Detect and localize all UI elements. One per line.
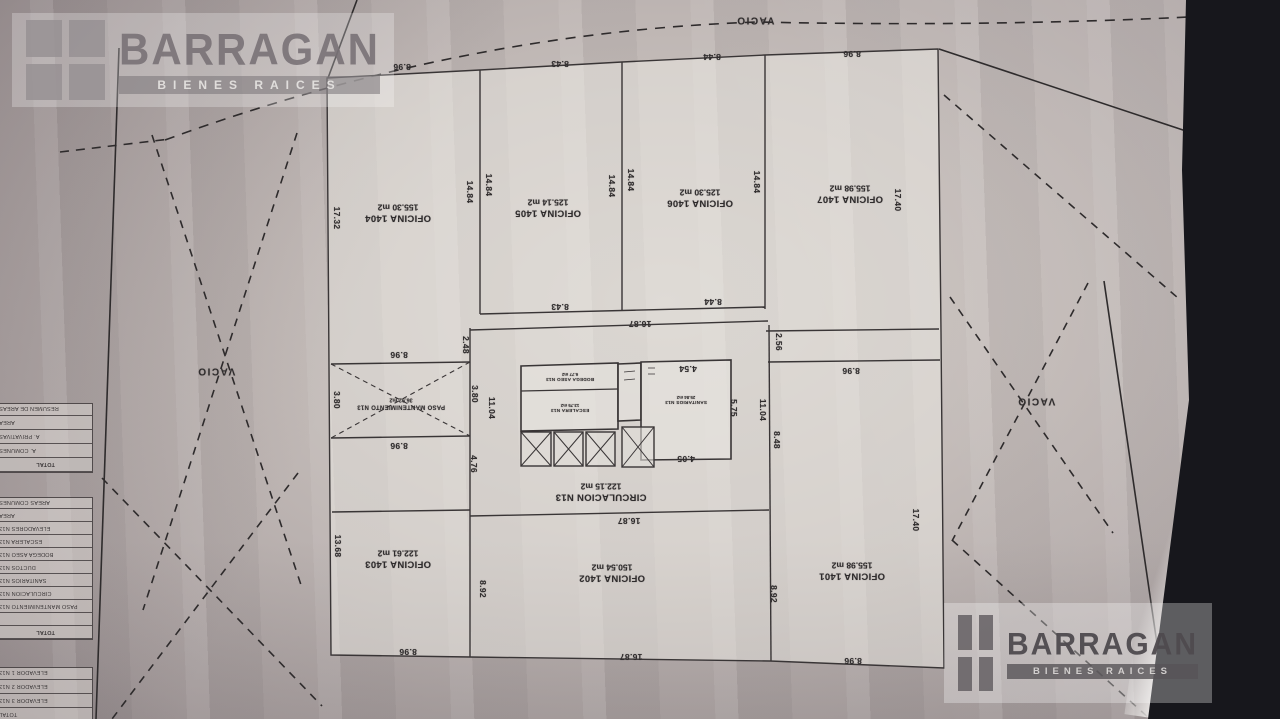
room-label: OFICINA 1406125.30 m2: [667, 187, 733, 208]
table-row: [0, 613, 92, 626]
room-area: 155.98 m2: [819, 560, 885, 570]
room-label: PASO MANTENIMIENTO N1336.92 m2: [357, 396, 445, 409]
dimension-label: 14.84: [626, 169, 636, 192]
dimension-label: 16.87: [629, 319, 652, 329]
dimension-label: 11.04: [487, 397, 497, 419]
table-row: ELEVADOR 3 N13: [0, 694, 92, 708]
dimension-label: 4.76: [469, 455, 479, 473]
dimension-label: 8.43: [551, 59, 569, 69]
logo-watermark-bottom-right: BARRAGAN BIENES RAICES: [944, 603, 1212, 703]
room-name: OFICINA 1401: [819, 569, 885, 580]
property-line-topright: [939, 49, 1186, 131]
room-area: 13.75 m2: [551, 403, 589, 408]
dimension-label: 8.96: [390, 441, 408, 451]
table-row: AREA: [0, 416, 92, 430]
dashed-line-bottomleft: [102, 478, 322, 706]
room-name: CIRCULACION N13: [555, 490, 646, 501]
dimension-label: 5.75: [729, 399, 739, 417]
dimension-label: 3.80: [470, 385, 480, 403]
table-row: RESUMEN DE AREAS: [0, 402, 92, 416]
room-name: BODEGA ASEO N13: [546, 377, 594, 382]
room-label: OFICINA 1402150.54 m2: [579, 562, 645, 583]
table-row: ELEVADOR 1 N13: [0, 666, 92, 680]
room-label: BODEGA ASEO N136.77 m2: [546, 372, 594, 382]
dimension-label: 8.96: [844, 656, 862, 666]
brand-name: BARRAGAN: [119, 25, 380, 75]
room-label: SANITARIOS N1325.84 m2: [665, 395, 707, 405]
dimension-label: 16.87: [618, 516, 641, 526]
dimension-label: 8.48: [772, 431, 782, 449]
dimension-label: 2.48: [461, 336, 471, 354]
elevators-table: TOTALELEVADOR 3 N13ELEVADOR 2 N13ELEVADO…: [0, 667, 93, 719]
room-label: OFICINA 1404155.30 m2: [365, 202, 431, 223]
elevator-shaft-1: [521, 432, 551, 466]
room-name: OFICINA 1404: [365, 211, 431, 222]
logo-watermark-top-left: BARRAGAN BIENES RAICES: [12, 13, 394, 107]
vacio-cross-left: [152, 135, 302, 588]
dimension-label: 17.40: [911, 509, 921, 532]
room-label: OFICINA 1401155.98 m2: [819, 560, 885, 581]
dimension-label: 14.84: [607, 175, 617, 198]
room-area: 122.61 m2: [365, 548, 431, 558]
dimension-label: 8.92: [769, 585, 779, 603]
dimension-label: 3.80: [332, 391, 342, 409]
room-area: 25.84 m2: [665, 395, 707, 400]
room-name: OFICINA 1403: [365, 557, 431, 568]
room-name: OFICINA 1405: [515, 206, 581, 217]
property-line-left: [96, 48, 119, 719]
elevator-shafts: [521, 427, 654, 467]
dimension-label: 8.96: [842, 366, 860, 376]
room-name: OFICINA 1402: [579, 571, 645, 582]
table-row: ELEVADOR 2 N13: [0, 680, 92, 694]
table-row: CIRCULACION N13: [0, 587, 92, 600]
dimension-label: 4.54: [679, 364, 697, 374]
room-area: 125.14 m2: [515, 197, 581, 207]
dimension-label: 8.96: [843, 49, 861, 59]
room-area: 155.30 m2: [365, 202, 431, 212]
barragan-window-icon: [958, 615, 993, 691]
table-row: DUCTOS N13: [0, 561, 92, 574]
room-label: CIRCULACION N13122.15 m2: [555, 481, 646, 502]
area-summary-table: TOTALA. COMUNESA. PRIVATIVASAREARESUMEN …: [0, 403, 93, 473]
table-row: A. PRIVATIVAS: [0, 430, 92, 444]
dimension-label: 8.96: [399, 647, 417, 657]
table-row: AREA: [0, 509, 92, 522]
room-label: OFICINA 1403122.61 m2: [365, 548, 431, 569]
dashed-line-right: [944, 95, 1178, 298]
dimension-label: 2.56: [774, 333, 784, 351]
table-row: TOTAL: [0, 458, 92, 472]
dimension-label: 4.05: [677, 454, 695, 464]
dimension-label: 17.32: [332, 207, 342, 230]
room-label: OFICINA 1407155.98 m2: [817, 183, 883, 204]
room-name: ESCALERA N13: [551, 408, 589, 413]
table-row: AREAS COMUNES: [0, 496, 92, 509]
elevator-shaft-3: [586, 432, 615, 466]
floor-plan-photo: 8.968.438.448.9617.3213.6814.8414.8414.8…: [0, 0, 1280, 719]
table-row: ELEVADORES N13: [0, 522, 92, 535]
brand-subtitle: BIENES RAICES: [119, 76, 380, 94]
room-area: 125.30 m2: [667, 187, 733, 197]
dashed-line-bottomleft: [112, 473, 298, 719]
vacio-cross-right: [952, 283, 1088, 541]
dimension-label: 8.96: [390, 350, 408, 360]
brand-subtitle: BIENES RAICES: [1007, 664, 1198, 679]
room-name: OFICINA 1406: [667, 196, 733, 207]
room-area: 155.98 m2: [817, 183, 883, 193]
table-row: SANITARIOS N13: [0, 574, 92, 587]
table-row: TOTAL: [0, 708, 92, 719]
vacio-label: VACIO: [197, 366, 235, 377]
dimension-label: 8.44: [704, 297, 722, 307]
room-area: 6.77 m2: [546, 372, 594, 377]
dimension-label: 14.84: [484, 174, 494, 197]
elevator-shaft-2: [554, 432, 583, 466]
vacio-label: VACIO: [736, 15, 774, 26]
room-name: PASO MANTENIMIENTO N13: [357, 403, 445, 410]
table-row: TOTAL: [0, 626, 92, 639]
dimension-label: 8.92: [478, 580, 488, 598]
table-row: BODEGA ASEO N13: [0, 548, 92, 561]
dimension-label: 16.87: [620, 652, 643, 662]
dimension-label: 8.43: [551, 302, 569, 312]
dimension-label: 13.68: [333, 535, 343, 558]
barragan-window-icon: [26, 20, 105, 100]
dimension-label: 11.04: [758, 399, 768, 421]
common-areas-table: TOTALPASO MANTENIMIENTO N13CIRCULACION N…: [0, 497, 93, 640]
service-elevator-shaft: [622, 427, 654, 467]
room-area: 150.54 m2: [579, 562, 645, 572]
dimension-label: 14.84: [465, 181, 475, 204]
dimension-label: 17.40: [893, 189, 903, 212]
room-name: OFICINA 1407: [817, 192, 883, 203]
table-row: A. COMUNES: [0, 444, 92, 458]
dimension-label: 14.84: [752, 171, 762, 194]
dimension-label: 8.44: [703, 52, 721, 62]
vacio-label: VACIO: [1017, 396, 1055, 407]
dimension-label: 8.96: [393, 62, 411, 72]
table-row: ESCALERA N13: [0, 535, 92, 548]
room-area: 122.15 m2: [555, 481, 646, 491]
table-row: PASO MANTENIMIENTO N13: [0, 600, 92, 613]
brand-name: BARRAGAN: [1007, 627, 1198, 663]
room-name: SANITARIOS N13: [665, 400, 707, 405]
room-label: ESCALERA N1313.75 m2: [551, 403, 589, 413]
room-label: OFICINA 1405125.14 m2: [515, 197, 581, 218]
